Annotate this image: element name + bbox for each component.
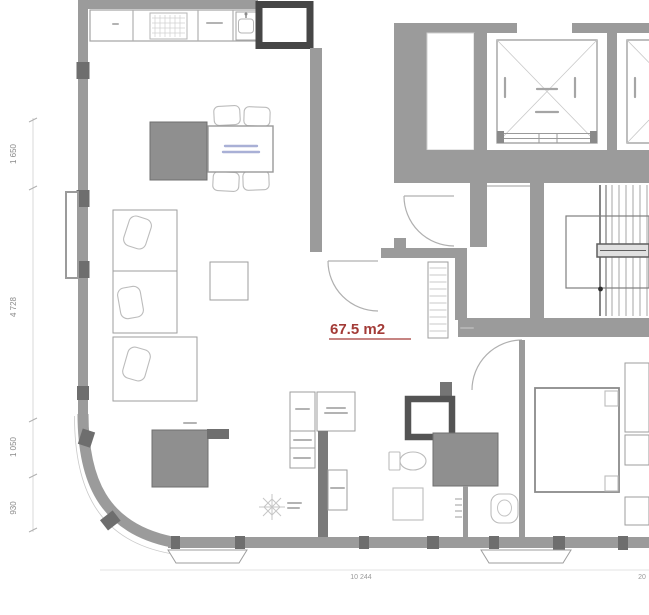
dimension-label-left-3: 1 050 — [9, 436, 18, 457]
elevator-2 — [627, 40, 649, 143]
shaft-room — [427, 33, 474, 150]
dimension-label-left-1: 1 650 — [9, 143, 18, 164]
tv-unit — [152, 423, 229, 487]
dimension-label-left-4: 930 — [9, 501, 18, 515]
dining-table — [208, 126, 273, 172]
closet-cell — [290, 392, 315, 431]
kitchen-sink — [236, 12, 256, 40]
stair-west-wall — [530, 183, 544, 335]
hall-wall — [455, 248, 467, 320]
wardrobe-cabinet — [625, 363, 649, 432]
sink — [491, 494, 518, 523]
shower-shaft — [408, 399, 452, 437]
mullion-block — [427, 536, 439, 549]
elevator-divider-wall — [607, 33, 617, 150]
kitchen-counter — [90, 10, 258, 41]
stairwell — [458, 183, 649, 337]
dimension-annotations: 1 650 4 728 1 050 930 10 244 20 67.5 m2 — [9, 118, 649, 581]
nightstand — [625, 435, 649, 465]
wall-stub — [440, 382, 452, 396]
core-wall — [474, 33, 487, 150]
door-swing-arc — [472, 340, 522, 390]
toilet — [389, 452, 426, 470]
dining-chair — [213, 171, 240, 191]
north-wall — [88, 0, 258, 9]
core-north-wall — [572, 23, 649, 33]
interior-wall — [318, 431, 328, 537]
elevator-1 — [497, 40, 597, 144]
mullion-block — [618, 536, 628, 550]
tv-cabinet — [152, 430, 208, 487]
bathroom — [389, 382, 518, 537]
stair-south-wall — [458, 318, 649, 337]
floor-plan-screenshot: 1 650 4 728 1 050 930 10 244 20 67.5 m2 — [0, 0, 649, 615]
door-swing-arc — [328, 261, 378, 311]
mullion-block — [171, 536, 180, 549]
nightstand — [625, 497, 649, 525]
ceiling-lamp-symbol — [259, 494, 301, 520]
duct-shaft — [259, 5, 310, 46]
area-label: 67.5 m2 — [330, 321, 385, 338]
door-swing-arc — [404, 196, 454, 246]
pillow — [605, 476, 618, 491]
living-east-wall — [310, 48, 322, 252]
pillow — [605, 391, 618, 406]
dimension-label-bottom-1: 10 244 — [350, 574, 372, 581]
bedroom — [519, 340, 649, 537]
office-chair — [116, 285, 144, 320]
hall-wall-notch — [394, 238, 406, 248]
bathroom-wall — [463, 486, 468, 537]
mullion-block — [553, 536, 565, 551]
dining-set — [208, 105, 273, 191]
stair-direction-arrow — [598, 287, 603, 292]
door-hatch-marks — [455, 499, 462, 517]
side-table — [210, 262, 248, 300]
work-area — [113, 210, 248, 401]
french-balcony-frame — [66, 192, 78, 278]
dimension-label-bottom-2: 20 — [638, 574, 646, 581]
mullion-block — [77, 386, 89, 400]
vanity — [393, 488, 423, 520]
terrace-marker — [481, 550, 571, 563]
dimension-label-left-2: 4 728 — [9, 296, 18, 317]
core-north-wall — [427, 23, 517, 33]
tv-screen — [207, 429, 229, 439]
dining-chair — [243, 171, 270, 191]
living-room — [113, 105, 301, 520]
closet-cell — [328, 470, 347, 510]
floor-plan-drawing: 1 650 4 728 1 050 930 10 244 20 67.5 m2 — [0, 0, 649, 615]
wardrobe — [290, 392, 355, 537]
bedroom-west-wall — [519, 340, 525, 537]
terrace-marker — [168, 550, 247, 563]
closet-cell — [317, 392, 355, 431]
mullion-block — [359, 536, 369, 549]
corridor-wall — [470, 183, 487, 247]
core-south-wall — [394, 150, 649, 183]
dining-chair — [244, 107, 271, 127]
kitchen-island — [150, 122, 207, 180]
bathroom-block — [433, 433, 498, 486]
hall-wall — [381, 248, 457, 258]
mullion-block — [235, 536, 245, 549]
dining-chair — [214, 105, 241, 125]
mullion-block — [489, 536, 499, 549]
mullion-block — [77, 62, 90, 79]
